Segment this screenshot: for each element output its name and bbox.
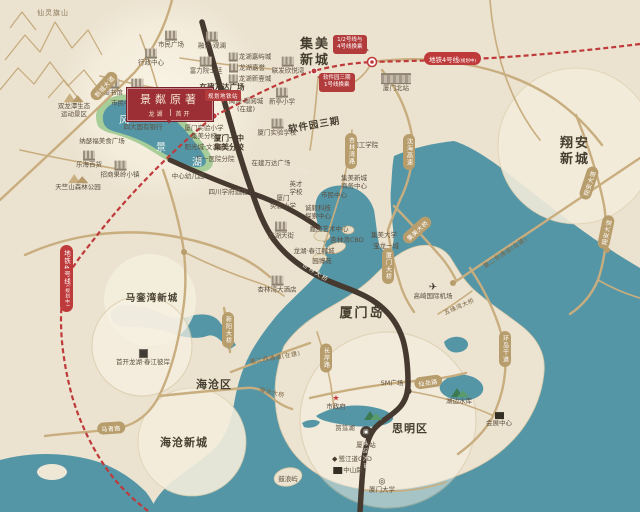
longhu-jiayu-label: 龙湖嘉誉 — [239, 64, 265, 72]
shuanglongtan-scenic-icon — [64, 93, 84, 102]
xinglinwan-cbd-label: 杏林湾CBD — [330, 237, 364, 245]
yingcai-school-label: 英才 学校 — [290, 181, 303, 197]
longhu-jiayucheng: 龙湖嘉屿城 — [229, 53, 272, 62]
zhongshan-road: 中山路 — [333, 467, 363, 475]
xinting-primary-school: 新亭小学 — [269, 88, 295, 107]
xiamen-shiyan-primary-label: 厦门 实验小学 — [270, 195, 296, 211]
xiamen-shiyan-primary: 厦门 实验小学 — [270, 195, 296, 211]
xiamen-railway-station-label: 厦门站 — [356, 442, 376, 450]
jimei-bridge-capsule: 集美大桥 — [400, 214, 433, 246]
gaoqi-international-airport: 高崎国际机场 — [414, 283, 453, 301]
administrative-center-label: 行政中心 — [138, 60, 164, 68]
longhu-paradise-walk-label: 龙湖天街 — [268, 233, 294, 241]
lianfa-xinyuewan-label: 联发欣悦湾 — [272, 68, 305, 76]
longhu-xinyicheng-label: 龙湖新壹城 — [239, 75, 272, 83]
rongqiao-guanlan-icon — [206, 32, 218, 42]
shenhai-expressway-capsule: 沈海高速 — [403, 134, 415, 170]
xiamen-yizhong-jimei-label: 厦门一中 集美分校 — [214, 134, 244, 153]
wuyuanwan-bridge: 五缘湾大桥 — [442, 295, 475, 316]
wuyuanwan-bridge-label: 五缘湾大桥 — [442, 295, 475, 316]
xiangan-xincheng: 翔安 新城 — [560, 136, 590, 169]
yuanboyuan-garden-expo-label: 园博苑 — [312, 258, 332, 266]
lujiangdao-cbd-label: 鹭江道CBD — [338, 456, 372, 464]
xiamen-island: 厦门岛 — [339, 306, 384, 322]
xincheng-avenue-capsule: 新城大道 — [88, 69, 120, 102]
central-kindergarten: 中心幼儿园 — [172, 173, 205, 181]
city-government-label: 市政府 — [326, 404, 346, 412]
xinglinwan-road-capsule: 杏林湾路 — [345, 133, 357, 169]
rf-yuanshiting-icon — [200, 57, 212, 67]
wanda-plaza-small-label: 在建万达广场 — [252, 160, 291, 168]
gulangyu-island-label: 鼓浪屿 — [278, 476, 298, 484]
sm-plaza-label: SM广场 — [381, 380, 404, 388]
rf-yuanshiting-label: 富力院士廷 — [190, 68, 223, 76]
yingcai-school: 英才 学校 — [290, 181, 303, 197]
xiangan-xincheng-label: 翔安 新城 — [560, 136, 590, 169]
xuefu-hotel: 四川学府酒店 — [209, 189, 248, 197]
convention-center-label: 会展中心 — [486, 420, 512, 428]
administrative-center-icon — [145, 49, 157, 59]
lianfa-xinyuewan-icon — [282, 57, 294, 67]
yundang-lake: 筼筜湖 — [335, 425, 355, 433]
gaoqi-international-airport-icon — [429, 283, 437, 293]
xiangan-avenue-north-capsule: 翔安大道 — [578, 165, 600, 201]
planned-metro-station-tag: 规划地铁站 — [205, 90, 241, 101]
rongqiao-guanlan: 融侨·观澜 — [198, 32, 226, 51]
xiamen-shiyan-school-icon — [271, 119, 283, 129]
gulangyu-island: 鼓浪屿 — [278, 476, 298, 484]
xiamen-yizhong-jimei: 厦门一中 集美分校 — [214, 134, 244, 153]
jimei-business-center: 集美新城 商务中心 — [341, 175, 367, 191]
second-west-channel: 第二西通道(在建) — [249, 348, 301, 366]
convention-center-icon — [495, 412, 504, 419]
sm-plaza: SM广场 — [381, 380, 404, 388]
four-state-banks-label: 四大国有银行 — [124, 124, 163, 132]
longhu-xinyicheng: 龙湖新壹城 — [229, 75, 272, 84]
second-east-channel: 第二东通道(在建) — [481, 234, 528, 270]
xiamen-university: 厦门大学 — [369, 478, 395, 495]
citizen-square-icon — [165, 31, 177, 41]
haixiang-avenue: 海翔大道 — [280, 158, 311, 177]
xiamen-north-station-label: 厦门北站 — [383, 85, 409, 93]
xuefu-hotel-label: 四川学府酒店 — [209, 189, 248, 197]
zhaoshang-guoling-town: 招商果岭小镇 — [101, 161, 140, 180]
chengyi-science-center-label: 诚毅科技 探索中心 — [305, 205, 331, 221]
maluanwan-xincheng-label: 马銮湾新城 — [126, 290, 179, 304]
huandao-avenue-capsule: 环岛干道 — [499, 331, 511, 367]
first-hospital-branch: 第一医院分院 — [196, 156, 235, 164]
citizen-square-label: 市民广场 — [158, 42, 184, 50]
lianfa-xinyuewan: 联发欣悦湾 — [272, 57, 305, 76]
changan-road-capsule: 长岸路 — [320, 344, 332, 373]
xiamen-shiyan-school-label: 厦门实验学校 — [258, 130, 297, 138]
nasefu-food-plaza-label: 纳瑟福美食广场 — [79, 138, 125, 146]
shuanglongtan-scenic: 双龙潭生态 运动景区 — [58, 93, 91, 119]
yangguangcheng-wenlanfu: 阳光城·文澜府 — [184, 144, 225, 152]
xianling-qishan-label: 仙灵旗山 — [37, 8, 69, 18]
xiamen-railway-station: 厦门站 — [356, 426, 376, 450]
haicang-district-label: 海沧区 — [196, 376, 232, 392]
hubian-reservoir-label: 湖边水库 — [446, 398, 472, 406]
xiamen-north-station: 厦门北站 — [381, 73, 411, 93]
egret-island-icon — [364, 411, 380, 420]
software-park-phase3: 软件园三期 — [287, 113, 341, 136]
xiamen-university-icon — [379, 478, 386, 487]
haicang-xincheng-label: 海沧新城 — [160, 434, 208, 450]
siming-district: 思明区 — [392, 420, 428, 436]
project-badge: 景粼原著 龙湖 首开 — [126, 87, 214, 122]
xinglinwan-hotel-label: 杏林湾大酒店 — [258, 287, 297, 295]
shuanglongtan-scenic-label: 双龙潭生态 运动景区 — [58, 103, 91, 119]
wanda-plaza-small: 在建万达广场 — [252, 160, 291, 168]
zhongshan-road-icon — [333, 467, 342, 474]
longhu-jiayucheng-icon — [229, 53, 238, 62]
lehai-department-store-label: 乐海百货 — [76, 162, 102, 170]
jimei-university-label: 集美大学 — [371, 232, 397, 240]
jiageng-art-center: 嘉庚艺术中心 — [310, 226, 349, 234]
yuanboyuan-garden-expo: 园博苑 — [312, 258, 332, 266]
shoukai-longhu-chunjiang: 首开龙湖·春江彼岸 — [116, 349, 170, 367]
siming-district-label: 思明区 — [392, 420, 428, 436]
shiyan-primary-jimei-branch: 厦门实验小学 集美分校 — [185, 125, 224, 141]
hubian-reservoir-icon — [451, 388, 467, 397]
haicang-bridge: 海沧大桥 — [258, 384, 285, 399]
metro-line4-label-east: 地铁4号线(规划中) — [424, 52, 481, 65]
xinglinwan-hotel-icon — [271, 276, 283, 286]
citizen-center-jimei-label: 市民中心 — [321, 192, 347, 200]
jiageng-art-center-label: 嘉庚艺术中心 — [310, 226, 349, 234]
longhu-paradise-walk-icon — [275, 222, 287, 232]
haicang-xincheng: 海沧新城 — [160, 434, 208, 450]
city-government: 市政府 — [326, 395, 346, 412]
xinglinwan-hotel: 杏林湾大酒店 — [258, 276, 297, 295]
shoukai-longhu-chunjiang-label: 首开龙湖·春江彼岸 — [116, 359, 170, 367]
xianling-qishan: 仙灵旗山 — [37, 8, 69, 18]
chenggong-avenue: 成功大道 — [360, 440, 371, 471]
chengyi-science-center: 诚毅科技 探索中心 — [305, 205, 331, 221]
xiamen-island-label: 厦门岛 — [339, 306, 384, 322]
chenggong-avenue-label: 成功大道 — [360, 440, 371, 471]
fengjinghu-char-jing: 景 — [156, 139, 166, 154]
longhu-paradise-walk: 龙湖天街 — [268, 222, 294, 241]
jimei-university: 集美大学 — [371, 232, 397, 240]
jimei-xincheng: 集美 新城 — [300, 37, 330, 70]
yundang-lake-label: 筼筜湖 — [335, 425, 355, 433]
xiamen-bridge-capsule: 厦门大桥 — [382, 248, 394, 284]
metro-line4-label-west: 地铁4号线(规划中) — [60, 245, 73, 312]
shoukai-longhu-chunjiang-icon — [138, 349, 147, 358]
developer-longhu: 龙湖 — [148, 109, 164, 118]
software-park-phase3-label: 软件园三期 — [287, 113, 341, 136]
second-west-channel-label: 第二西通道(在建) — [249, 348, 301, 366]
rf-yuanshiting: 富力院士廷 — [190, 57, 223, 76]
gaoqi-international-airport-label: 高崎国际机场 — [414, 293, 453, 301]
tianzhushan-forest-park: 天竺山森林公园 — [55, 174, 101, 192]
fengjinghu-char-hu-label: 湖 — [192, 154, 202, 169]
lehai-department-store: 乐海百货 — [76, 151, 102, 170]
maluanwan-xincheng: 马銮湾新城 — [126, 290, 179, 304]
longhu-chunjiang-licheng-label: 龙湖·春江郦城 — [293, 248, 334, 256]
convention-center: 会展中心 — [486, 412, 512, 428]
haicang-bridge-label: 海沧大桥 — [258, 384, 285, 399]
maqing-road-capsule: 马青路 — [97, 421, 125, 435]
lehai-department-store-icon — [83, 151, 95, 161]
interchange-callout: 1/2号线与 4号线换乘 — [333, 35, 367, 54]
first-hospital-branch-label: 第一医院分院 — [196, 156, 235, 164]
longhu-jiayu: 龙湖嘉誉 — [229, 64, 265, 73]
fengjinghu-char-hu: 湖 — [192, 154, 202, 169]
nasefu-food-plaza: 纳瑟福美食广场 — [79, 138, 125, 146]
xiamen-railway-station-icon — [360, 426, 372, 438]
second-east-channel-label: 第二东通道(在建) — [481, 234, 528, 270]
xinglin-bridge-label: 杏林大桥 — [301, 260, 331, 284]
project-badge-developers: 龙湖 首开 — [127, 109, 213, 118]
yangguangcheng-wenlanfu-label: 阳光城·文澜府 — [184, 144, 225, 152]
jimei-business-center-label: 集美新城 商务中心 — [341, 175, 367, 191]
central-kindergarten-label: 中心幼儿园 — [172, 173, 205, 181]
xinting-primary-school-label: 新亭小学 — [269, 99, 295, 107]
longhu-jiayucheng-label: 龙湖嘉屿城 — [239, 53, 272, 61]
developer-shoukai: 首开 — [170, 109, 192, 118]
zhongshan-road-label: 中山路 — [343, 467, 363, 475]
xinyang-bridge-capsule: 新阳大桥 — [222, 312, 234, 348]
xiamen-shiyan-school: 厦门实验学校 — [258, 119, 297, 138]
administrative-center: 行政中心 — [138, 49, 164, 68]
tianzhushan-forest-park-label: 天竺山森林公园 — [55, 184, 101, 192]
city-government-icon — [332, 395, 339, 404]
jimei-xincheng-label: 集美 新城 — [300, 37, 330, 70]
haicang-district: 海沧区 — [196, 376, 232, 392]
citizen-center-jimei: 市民中心 — [321, 192, 347, 200]
zhaoshang-guoling-town-icon — [114, 161, 126, 171]
shiyan-primary-jimei-branch-label: 厦门实验小学 集美分校 — [185, 125, 224, 141]
lujiangdao-cbd: 鹭江道CBD — [332, 456, 372, 464]
tianzhushan-forest-park-icon — [68, 174, 88, 183]
xinglinwan-cbd: 杏林湾CBD — [330, 237, 364, 245]
haixiang-avenue-label: 海翔大道 — [280, 158, 311, 177]
citizen-square: 市民广场 — [158, 31, 184, 50]
map-stage: 仙灵旗山双龙潭生态 运动景区天竺山森林公园乐海百货纳瑟福美食广场招商果岭小镇市民… — [0, 0, 640, 512]
xiamen-north-station-icon — [381, 73, 411, 84]
xinglin-bridge: 杏林大桥 — [301, 260, 331, 284]
xiangan-avenue-south-capsule: 翔安大道 — [597, 214, 616, 250]
lujiangdao-cbd-icon — [332, 456, 337, 464]
rongqiao-guanlan-label: 融侨·观澜 — [198, 43, 226, 51]
software-park-callout: 软件园三期 1号线换乘 — [319, 73, 355, 92]
hubian-reservoir: 湖边水库 — [446, 388, 472, 406]
longhu-xinyicheng-icon — [229, 75, 238, 84]
project-badge-title: 景粼原著 — [127, 91, 213, 107]
xianyue-road-capsule: 仙岳路 — [414, 374, 443, 390]
longhu-chunjiang-licheng: 龙湖·春江郦城 — [293, 248, 334, 256]
zhaoshang-guoling-town-label: 招商果岭小镇 — [101, 172, 140, 180]
longhu-jiayu-icon — [229, 64, 238, 73]
xiamen-university-label: 厦门大学 — [369, 487, 395, 495]
xinting-primary-school-icon — [276, 88, 288, 98]
fengjinghu-char-jing-label: 景 — [156, 139, 166, 154]
four-state-banks: 四大国有银行 — [124, 124, 163, 132]
egret-island — [364, 411, 380, 421]
